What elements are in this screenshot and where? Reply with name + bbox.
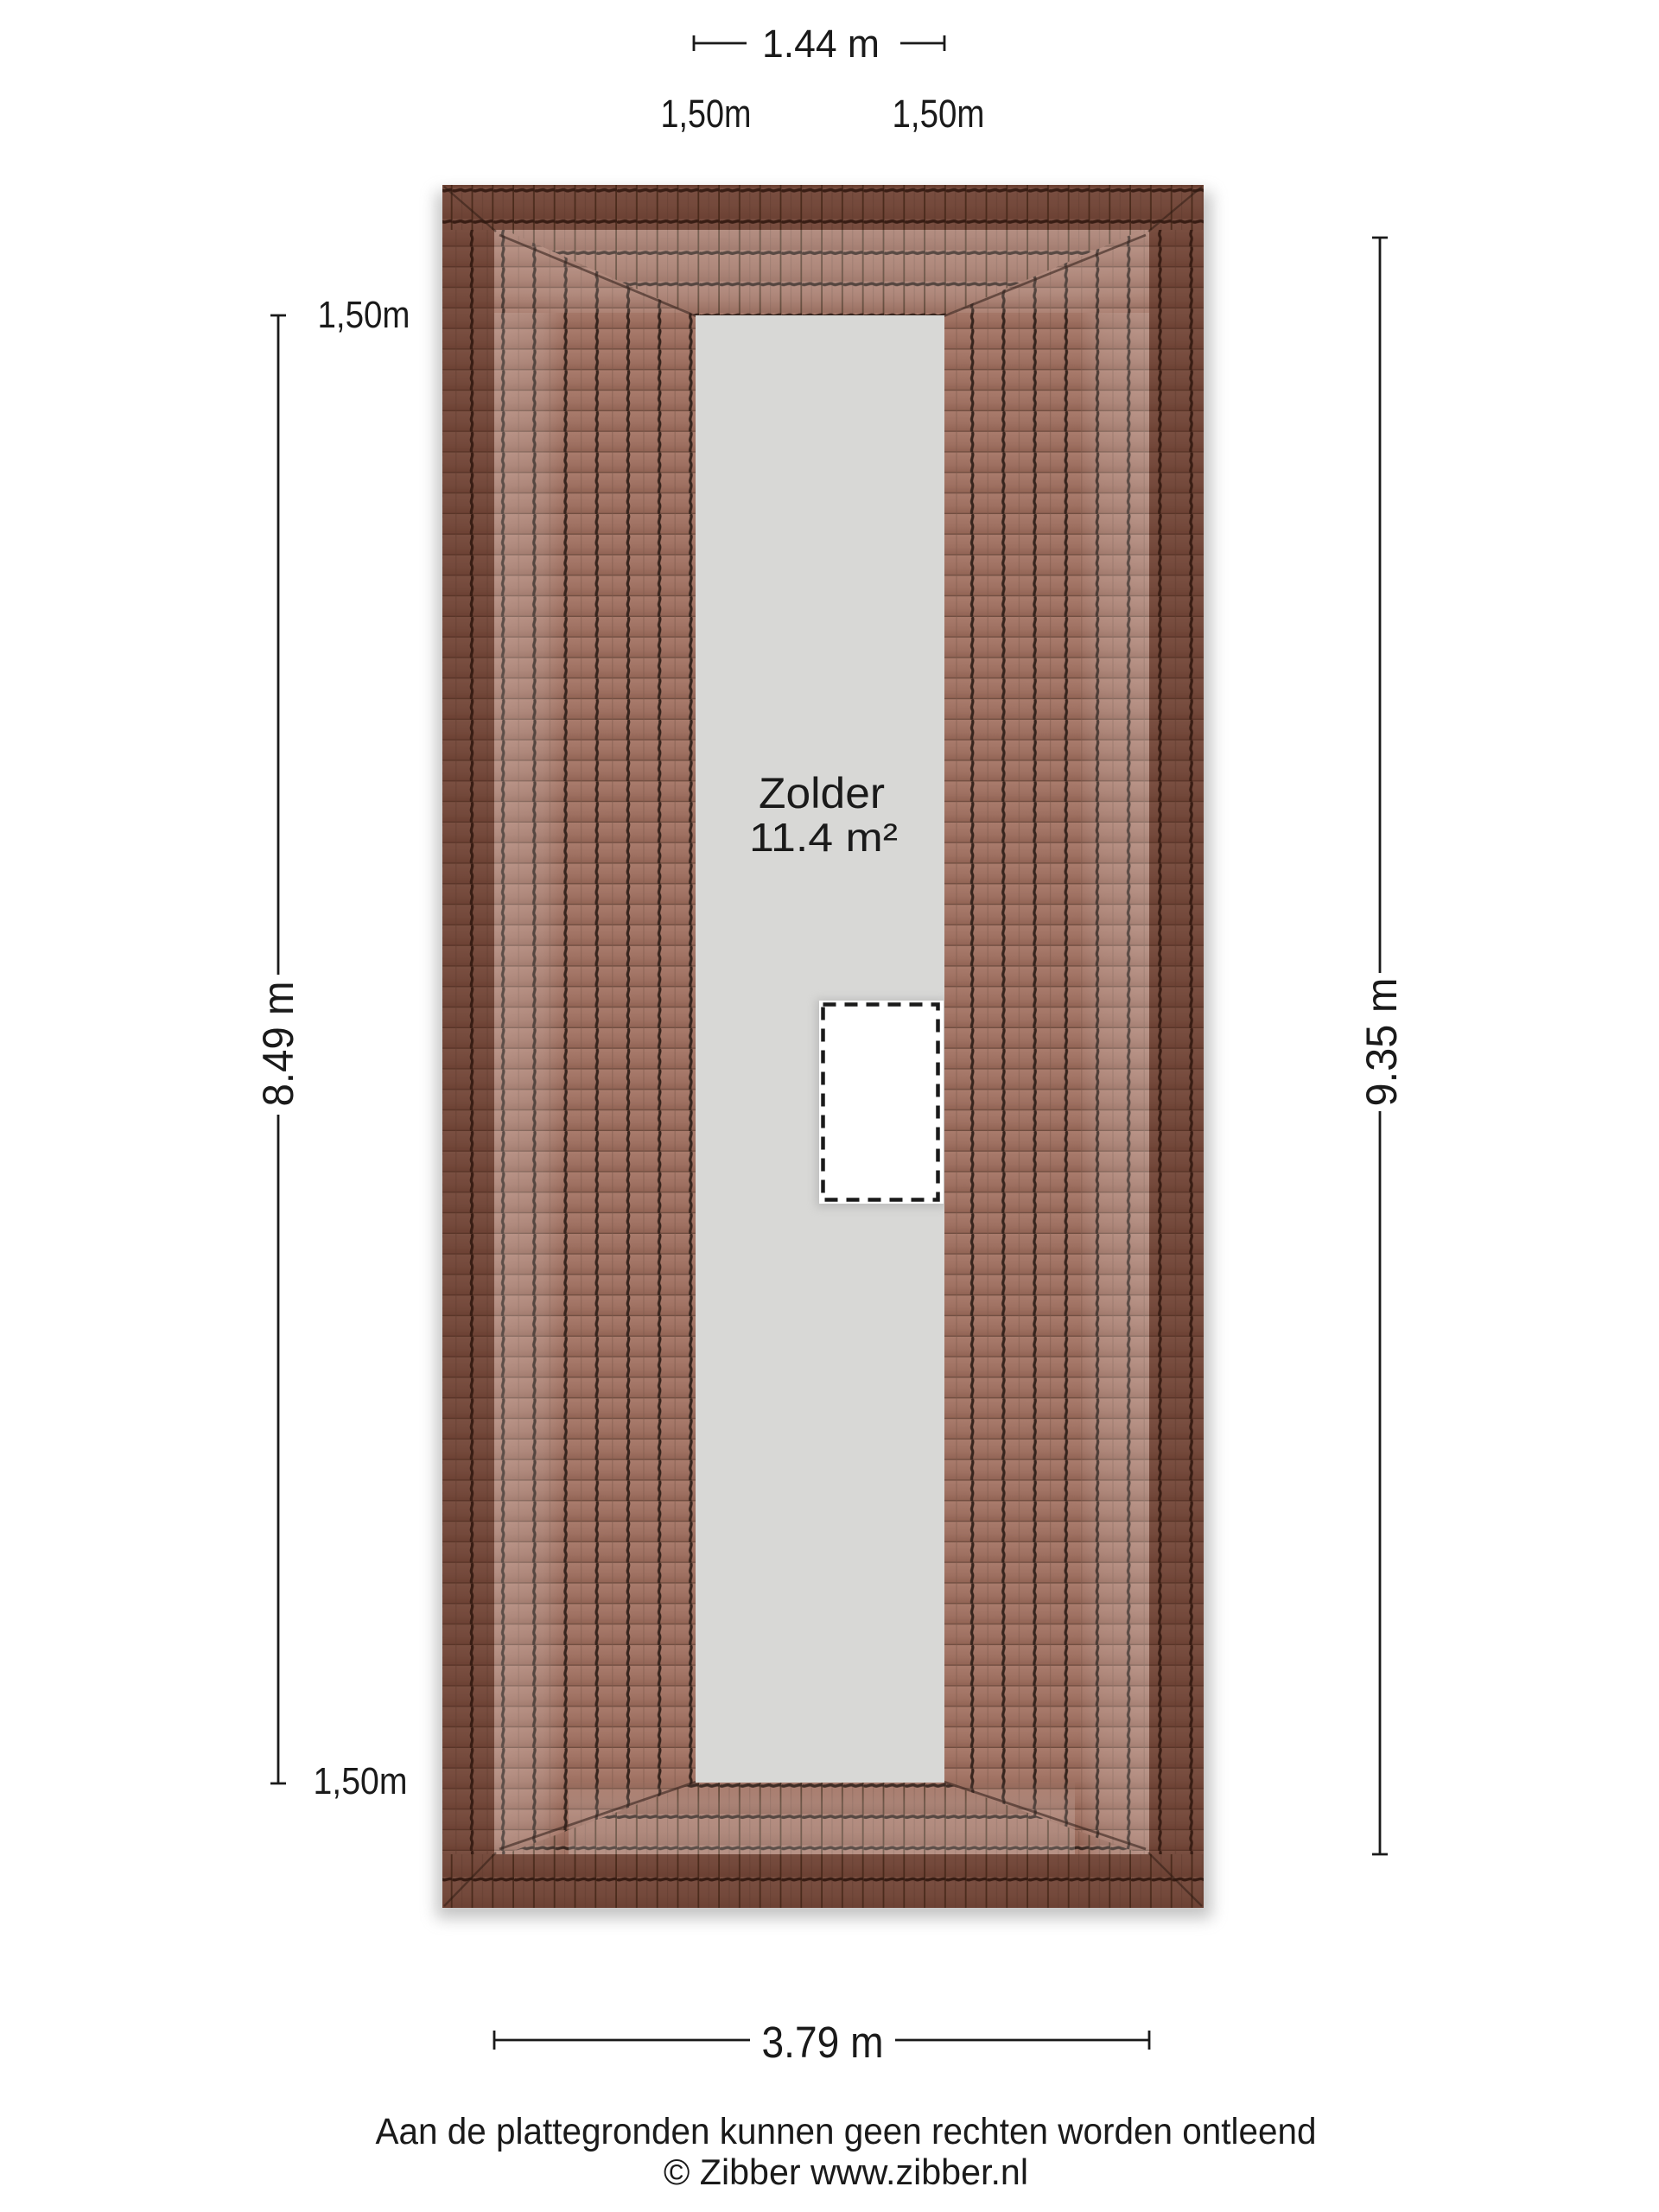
svg-text:1.44 m: 1.44 m <box>762 22 880 66</box>
svg-text:1,50m: 1,50m <box>893 92 985 136</box>
svg-text:3.79 m: 3.79 m <box>762 2018 884 2067</box>
svg-text:Zolder: Zolder <box>759 769 885 817</box>
svg-text:8.49 m: 8.49 m <box>254 982 302 1107</box>
svg-text:11.4 m²: 11.4 m² <box>749 815 898 860</box>
svg-text:Aan de plattegronden kunnen ge: Aan de plattegronden kunnen geen rechten… <box>376 2111 1317 2152</box>
svg-text:1,50m: 1,50m <box>314 1760 408 1802</box>
svg-text:1,50m: 1,50m <box>318 294 410 336</box>
svg-text:1,50m: 1,50m <box>661 92 752 136</box>
svg-text:9.35 m: 9.35 m <box>1357 978 1406 1107</box>
svg-text:© Zibber www.zibber.nl: © Zibber www.zibber.nl <box>664 2152 1028 2192</box>
